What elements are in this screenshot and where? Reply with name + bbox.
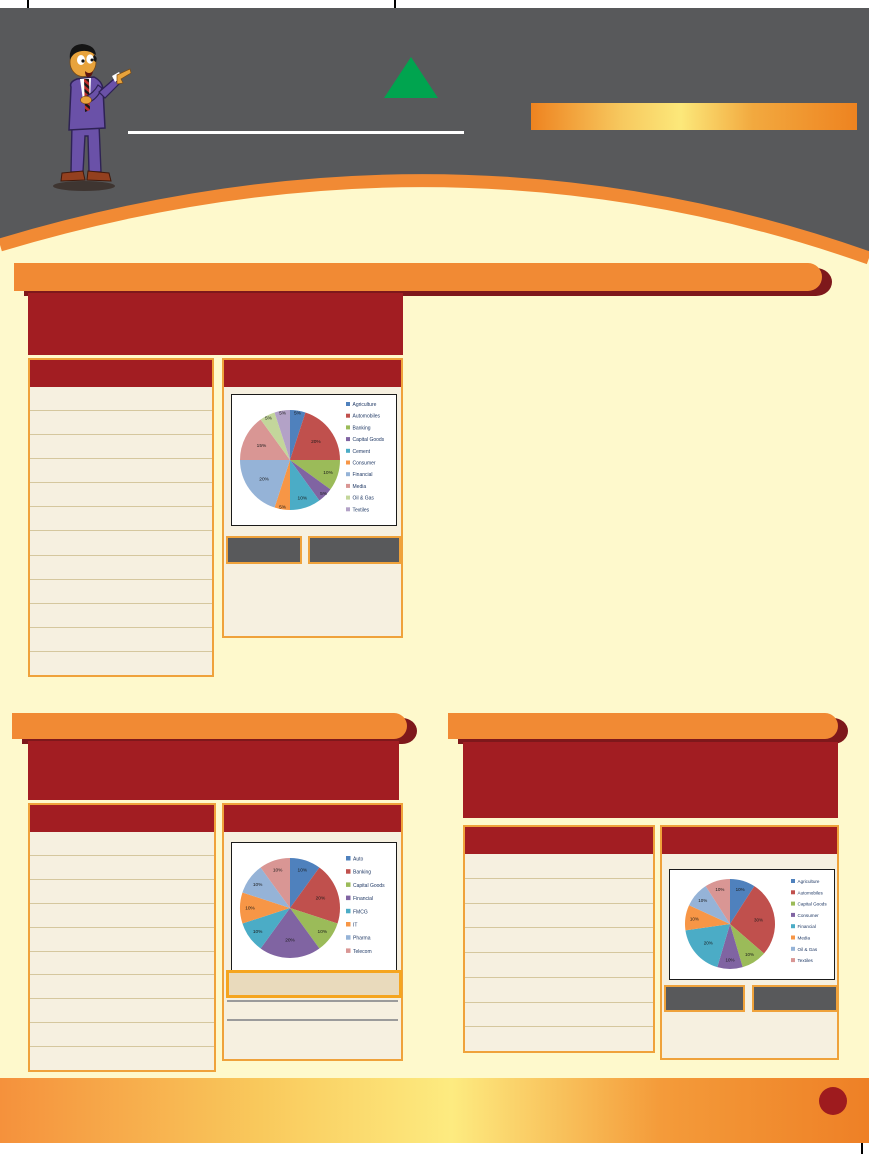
banner-bar: [14, 263, 822, 291]
legend-label: Telecom: [353, 949, 372, 955]
chart-box: 10%20%10%20%10%10%10%10%AutoBankingCapit…: [231, 842, 397, 974]
slice-label: 20%: [311, 439, 321, 445]
table-row: [30, 483, 212, 507]
legend-swatch: [346, 472, 350, 476]
chart-box: 5%20%10%5%10%5%20%15%5%5%AgricultureAuto…: [231, 394, 397, 526]
table-body: [30, 832, 214, 1070]
section-2-title-block: [28, 741, 399, 800]
pointing-hand: [117, 69, 131, 84]
legend-swatch: [791, 902, 795, 906]
table-row: [30, 459, 212, 483]
section-2-banner: [12, 713, 407, 739]
table-row: [30, 1023, 214, 1047]
legend-label: Capital Goods: [798, 902, 828, 907]
slice-label: 10%: [698, 898, 707, 903]
legend-label: Cement: [353, 449, 371, 455]
table-row: [30, 652, 212, 675]
section-2-chart-panel: 10%20%10%20%10%10%10%10%AutoBankingCapit…: [222, 803, 403, 1061]
table-row: [30, 975, 214, 999]
legend-swatch: [346, 449, 350, 453]
legend-label: Consumer: [353, 461, 376, 467]
table-row: [30, 904, 214, 928]
slice-label: 5%: [265, 415, 273, 421]
legend-swatch: [346, 896, 351, 901]
legend-label: Textiles: [798, 958, 814, 963]
crop-mark: [861, 1143, 863, 1154]
legend-label: Consumer: [798, 913, 820, 918]
section-3-banner: [448, 713, 838, 739]
slice-label: 10%: [323, 470, 333, 476]
slice-label: 20%: [704, 940, 713, 945]
header-gradient-bar: [531, 103, 857, 130]
legend-swatch: [346, 402, 350, 406]
table-row: [465, 854, 653, 879]
legend-swatch: [346, 882, 351, 887]
table-body: [465, 854, 653, 1051]
table-row: [30, 411, 212, 435]
section-3-table: [463, 825, 655, 1053]
table-row: [30, 952, 214, 976]
slice-label: 15%: [257, 443, 267, 449]
section-1-title-block: [28, 293, 403, 355]
legend-label: Agriculture: [798, 879, 820, 884]
table-body: [30, 387, 212, 675]
legend-label: Oil & Gas: [798, 947, 818, 952]
legend-label: Pharma: [353, 936, 371, 942]
table-row: [30, 880, 214, 904]
section-1-table: [28, 358, 214, 677]
table-row: [30, 628, 212, 652]
table-row: [465, 904, 653, 929]
table-row: [227, 1000, 398, 1021]
table-row: [30, 832, 214, 856]
table-row: [465, 953, 653, 978]
slice-label: 10%: [273, 868, 283, 874]
legend-swatch: [346, 437, 350, 441]
banner-bar: [12, 713, 407, 739]
pie-chart-sector-weights: 10%30%10%10%20%10%10%10%AgricultureAutom…: [670, 870, 834, 979]
slice-label: 10%: [736, 887, 745, 892]
legend-swatch: [346, 948, 351, 953]
legend-swatch: [346, 461, 350, 465]
title-underline: [128, 131, 464, 134]
info-box: [226, 536, 302, 564]
table-row: [30, 387, 212, 411]
header-band: [0, 8, 869, 300]
pie-chart-sector-allocation: 5%20%10%5%10%5%20%15%5%5%AgricultureAuto…: [232, 395, 396, 525]
legend-swatch: [346, 425, 350, 429]
legend-label: Automobiles: [798, 890, 824, 895]
footer-bar: [0, 1078, 869, 1143]
legend-label: IT: [353, 923, 357, 929]
slice-label: 20%: [316, 896, 326, 902]
table-row: [465, 928, 653, 953]
legend-swatch: [346, 496, 350, 500]
legend-label: Automobiles: [353, 414, 381, 420]
legend-label: FMCG: [353, 909, 368, 915]
slice-label: 5%: [279, 411, 287, 417]
legend-label: Oil & Gas: [353, 496, 375, 502]
table-row: [30, 507, 212, 531]
legend-swatch: [791, 936, 795, 940]
legend-swatch: [346, 507, 350, 511]
legend-swatch: [346, 869, 351, 874]
table-row: [30, 1047, 214, 1070]
table-row: [30, 856, 214, 880]
table-header: [30, 805, 214, 832]
legend-label: Capital Goods: [353, 437, 385, 443]
table-row: [465, 978, 653, 1003]
chart-panel-header: [224, 805, 401, 832]
banner-bar: [448, 713, 838, 739]
legend-swatch: [346, 922, 351, 927]
legend-swatch: [346, 414, 350, 418]
section-3-chart-panel: 10%30%10%10%20%10%10%10%AgricultureAutom…: [660, 825, 839, 1060]
slice-label: 10%: [690, 916, 699, 921]
chart-panel-header: [662, 827, 837, 854]
slice-label: 10%: [745, 952, 754, 957]
legend-swatch: [791, 890, 795, 894]
legend-swatch: [791, 913, 795, 917]
legend-label: Financial: [353, 896, 373, 902]
legend-label: Banking: [353, 870, 371, 876]
slice-label: 10%: [318, 929, 328, 935]
legend-swatch: [791, 958, 795, 962]
page: 5%20%10%5%10%5%20%15%5%5%AgricultureAuto…: [0, 0, 869, 1154]
slice-label: 10%: [725, 958, 734, 963]
slice-label: 10%: [715, 887, 724, 892]
legend-swatch: [346, 909, 351, 914]
info-box: [308, 536, 401, 564]
pie-chart-sector-split: 10%20%10%20%10%10%10%10%AutoBankingCapit…: [232, 843, 396, 973]
slice-label: 5%: [279, 505, 287, 511]
table-row: [30, 556, 212, 580]
slice-label: 30%: [754, 918, 763, 923]
table-row: [30, 435, 212, 459]
chart-panel-header: [224, 360, 401, 387]
slice-label: 20%: [285, 938, 295, 944]
slice-label: 5%: [294, 411, 302, 417]
footer-page-dot: [819, 1087, 847, 1115]
legend-label: Capital Goods: [353, 883, 385, 889]
table-row: [465, 879, 653, 904]
section-1-chart-panel: 5%20%10%5%10%5%20%15%5%5%AgricultureAuto…: [222, 358, 403, 638]
legend-label: Media: [353, 484, 367, 490]
legend-label: Textiles: [353, 507, 370, 513]
slice-label: 10%: [245, 906, 255, 912]
legend-label: Auto: [353, 857, 364, 863]
info-box: [664, 985, 745, 1012]
slice-label: 10%: [298, 496, 308, 502]
info-box: [752, 985, 838, 1012]
section-3-title-block: [463, 742, 838, 818]
section-1-banner: [14, 263, 822, 291]
pupil: [81, 59, 84, 62]
table-row: [30, 580, 212, 604]
legend-swatch: [791, 924, 795, 928]
legend-swatch: [346, 856, 351, 861]
table-row: [30, 999, 214, 1023]
chart-box: 10%30%10%10%20%10%10%10%AgricultureAutom…: [669, 869, 835, 980]
table-row: [30, 928, 214, 952]
slice-label: 10%: [298, 868, 308, 874]
legend-label: Banking: [353, 425, 371, 431]
table-row: [465, 1027, 653, 1051]
table-row: [30, 604, 212, 628]
table-row: [465, 1003, 653, 1028]
legend-swatch: [791, 947, 795, 951]
legend-swatch: [346, 484, 350, 488]
pupil: [91, 59, 94, 62]
hand: [81, 96, 92, 104]
table-row: [227, 980, 398, 1002]
legend-label: Agriculture: [353, 402, 377, 408]
table-header: [30, 360, 212, 387]
section-2-table: [28, 803, 216, 1072]
legend-label: Financial: [798, 924, 816, 929]
legend-swatch: [346, 935, 351, 940]
table-header: [465, 827, 653, 854]
slice-label: 20%: [259, 476, 269, 482]
table-row: [30, 531, 212, 555]
legend-swatch: [791, 879, 795, 883]
slice-label: 10%: [253, 882, 263, 888]
slice-label: 10%: [253, 929, 263, 935]
legend-label: Financial: [353, 472, 373, 478]
slice-label: 5%: [320, 491, 328, 497]
legend-label: Media: [798, 936, 811, 941]
up-triangle-icon: [384, 57, 438, 98]
